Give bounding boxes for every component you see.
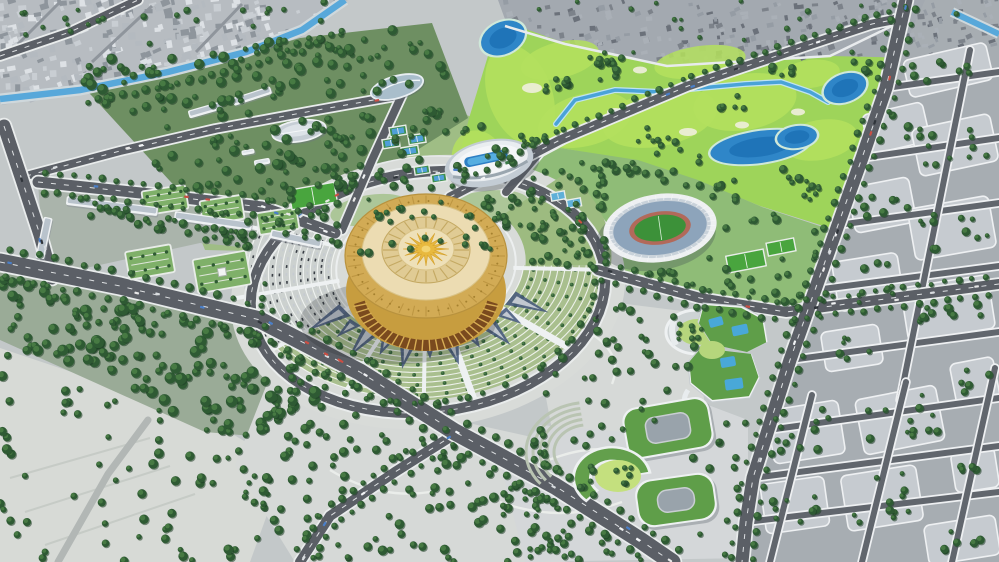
- masterplan-render: [0, 0, 999, 562]
- aerial-scene: [0, 0, 999, 562]
